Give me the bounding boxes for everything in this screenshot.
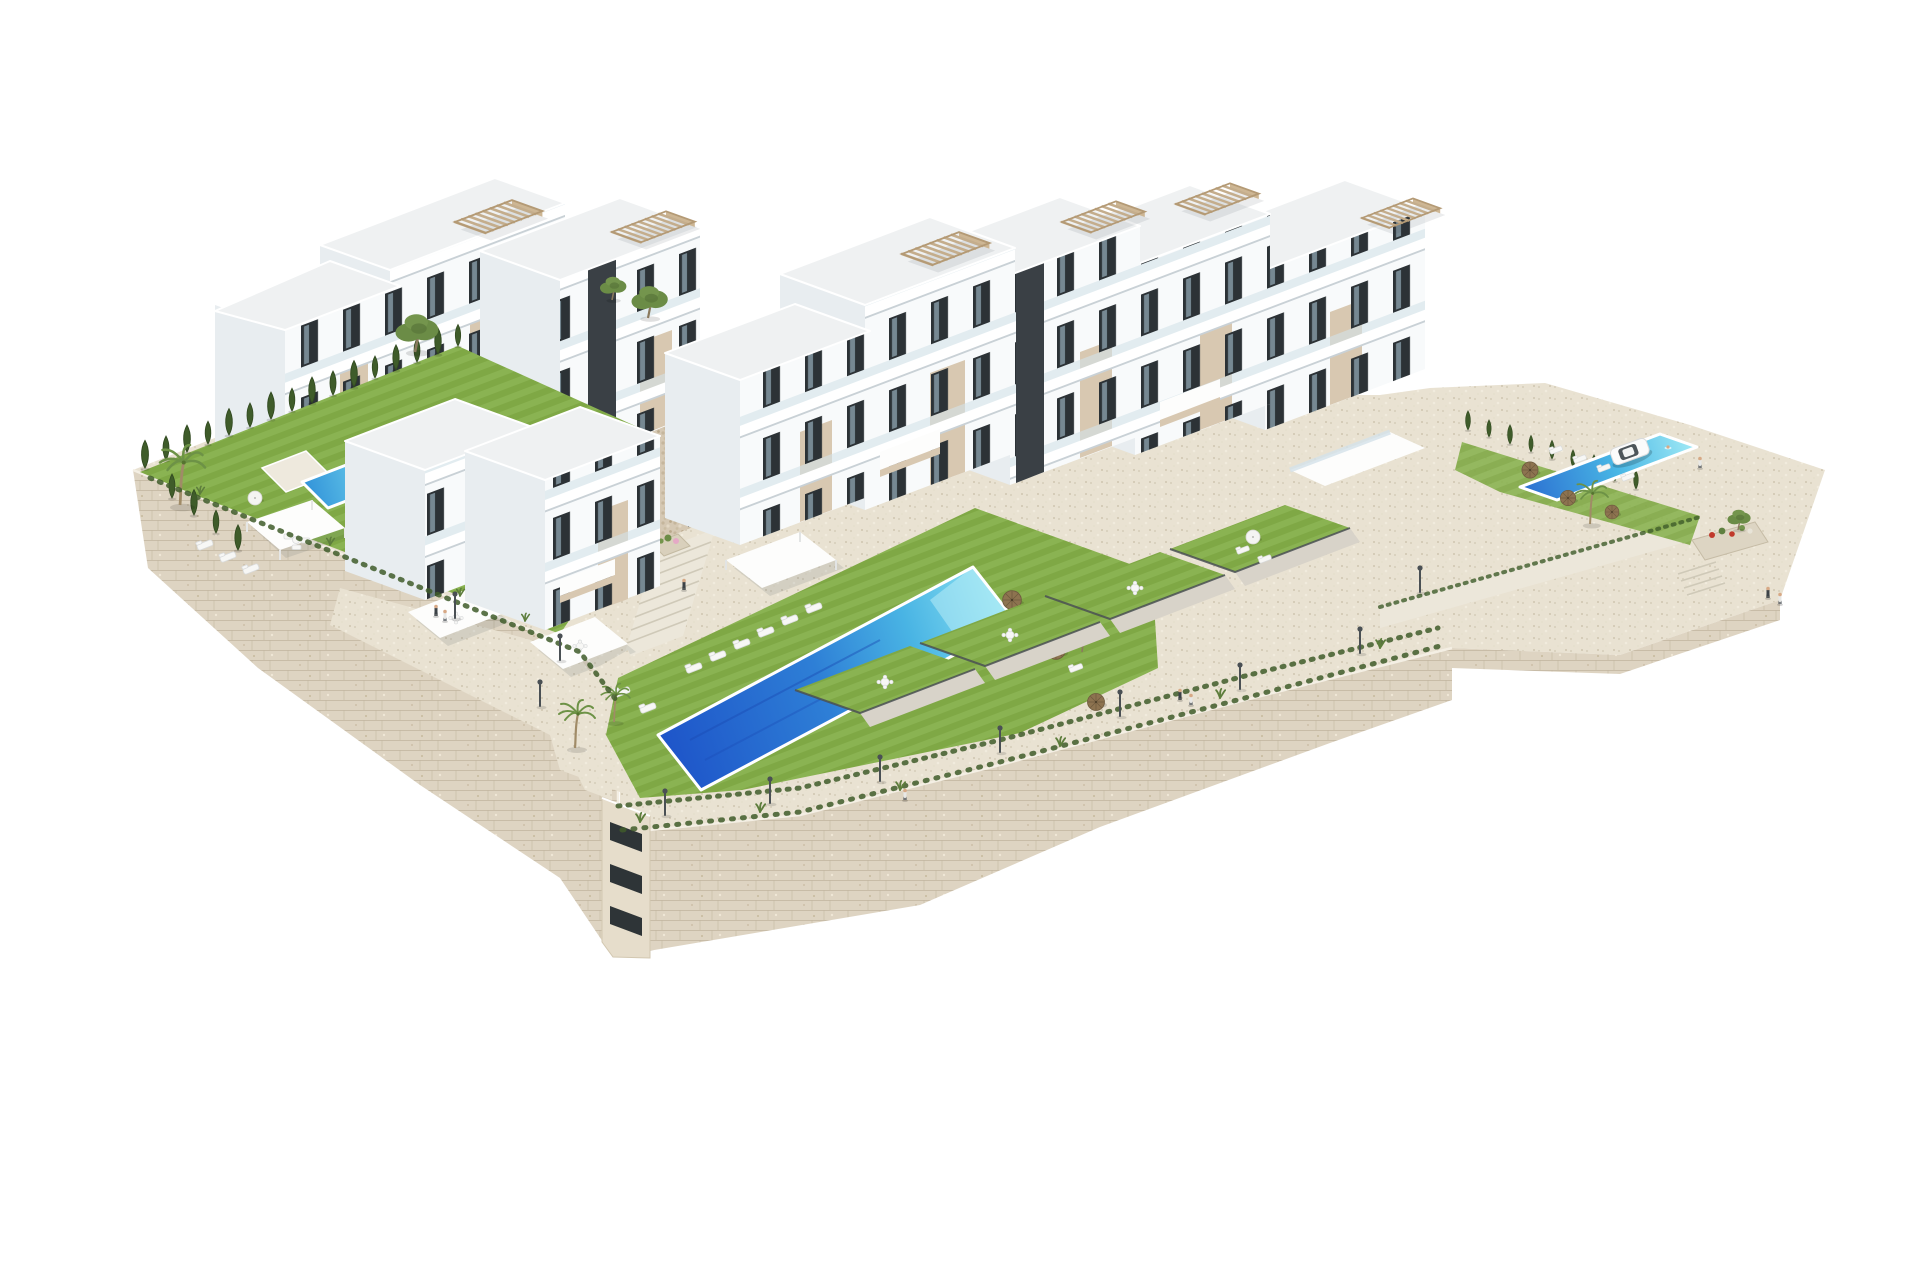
aerial-render: Aerial 3D architectural rendering of a h… [0, 0, 1920, 1280]
corner-stair-tower [602, 798, 650, 958]
render-canvas: Aerial 3D architectural rendering of a h… [0, 0, 1920, 1280]
